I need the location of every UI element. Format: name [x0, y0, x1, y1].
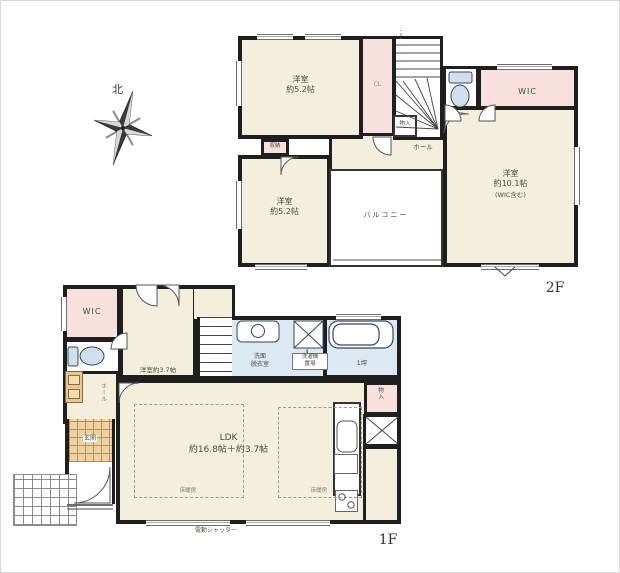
- room-size: 約10.1帖: [494, 179, 528, 188]
- window: [246, 520, 330, 526]
- washroom-line1: 洗面: [254, 353, 266, 360]
- floor2-balcony-label: バルコニー: [331, 211, 441, 220]
- window: [497, 64, 552, 70]
- floor2-closet-label: CL: [360, 81, 395, 89]
- floor2-plan: 洋室 約5.2帖 CL 収納 物入 ホール WIC 洋室 約5.2帖 バルコニー…: [233, 29, 585, 297]
- floor1-room37-label: 洋室約3.7帖: [119, 366, 197, 374]
- room-name: 洋室: [277, 197, 293, 206]
- floor1-cupboard: [363, 446, 401, 524]
- window: [336, 314, 381, 320]
- floor1-porch: [13, 474, 77, 526]
- window: [481, 264, 539, 270]
- floor1-stairs: [197, 317, 235, 379]
- floor1-floorheat-label-a: 床暖房: [158, 488, 218, 495]
- floor2-storage-label: 収納: [261, 143, 289, 150]
- floor1-plan: WIC 洋室約3.7帖 ホール 玄関 洗面 脱衣室 洗濯機 置場 1坪 物入 L…: [6, 271, 416, 571]
- washroom-line2: 脱衣室: [251, 361, 269, 368]
- room-size: 約5.2帖: [286, 85, 315, 94]
- window: [236, 61, 242, 106]
- floor1-bath-label: 1坪: [323, 359, 401, 367]
- floor1-room37: [119, 285, 197, 379]
- floor2-bedroom-c-label: 洋室 約10.1帖 (WIC含む): [449, 169, 572, 200]
- floor1-genkan-label: 玄関: [65, 435, 115, 443]
- laundry-line1: 洗濯機: [302, 354, 319, 360]
- compass-rose: 北: [86, 71, 166, 171]
- floor2-bedroom-b-label: 洋室 約5.2帖: [243, 197, 326, 218]
- room-size: 約3.7帖: [153, 366, 176, 374]
- room-name: 洋室: [140, 366, 153, 374]
- floor2-hall-label: ホール: [393, 143, 453, 151]
- room-note: (WIC含む): [495, 191, 526, 199]
- floor1-floor-label: 1F: [366, 531, 410, 549]
- floor1-ldk-label: LDK 約16.8帖＋約3.7帖: [146, 433, 311, 456]
- room-size: 約5.2帖: [270, 207, 299, 216]
- floor1-monoire-label: 物入: [376, 387, 383, 400]
- window: [146, 520, 230, 526]
- window: [255, 264, 307, 270]
- genkan-text: 玄関: [83, 435, 97, 442]
- floor2-floor-label: 2F: [533, 279, 577, 297]
- laundry-line2: 置場: [304, 361, 315, 367]
- floor1-toilet-room: [63, 338, 121, 374]
- window: [574, 147, 580, 205]
- floor1-shoe-cabinet-shelf: [68, 375, 80, 385]
- ldk-name: LDK: [220, 433, 238, 443]
- window: [257, 34, 293, 40]
- floor1-hall-label: ホール: [99, 383, 106, 403]
- floor1-shutter-label: 電動シャッター: [166, 527, 266, 535]
- floor1-washroom-label: 洗面 脱衣室: [234, 353, 286, 369]
- window: [305, 34, 341, 40]
- compass-north-char: 北: [112, 83, 123, 96]
- ldk-size: 約16.8帖＋約3.7帖: [189, 445, 268, 455]
- floor1-room37-ext: [194, 285, 235, 319]
- window: [236, 181, 242, 229]
- floor2-wic-label: WIC: [477, 87, 578, 97]
- floor1-bathroom: [323, 316, 401, 379]
- floorplan-canvas: 北 document.currentScript.previousElement…: [0, 0, 620, 573]
- floor1-shoe-cabinet-shelf: [68, 389, 80, 399]
- room-name: 洋室: [503, 169, 519, 178]
- floor2-bedroom-a-label: 洋室 約5.2帖: [248, 75, 353, 96]
- floor1-wic-label: WIC: [63, 307, 121, 317]
- floor1-fridge-space: [363, 414, 401, 447]
- room-name: 洋室: [293, 75, 309, 84]
- floor2-monoire-label: 物入: [392, 121, 418, 128]
- floor1-floorheat-label-b: 床暖房: [289, 488, 349, 495]
